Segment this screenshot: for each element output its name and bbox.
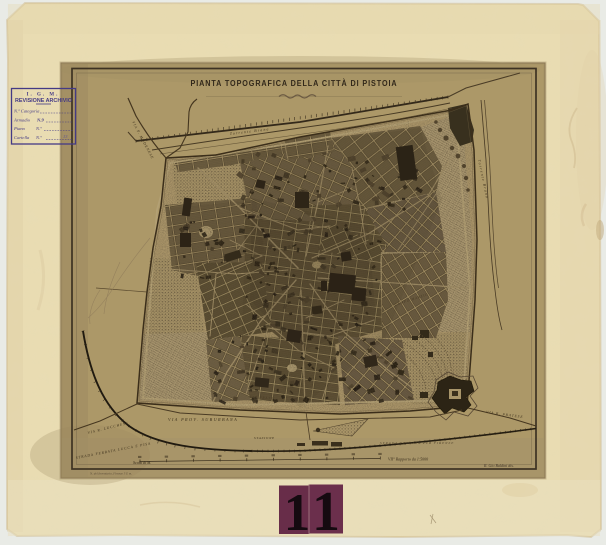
svg-text:STAZIONE: STAZIONE (254, 436, 275, 440)
svg-text:VIA PROV. SUBURBANA: VIA PROV. SUBURBANA (168, 417, 238, 422)
svg-text:N.º Categoria: N.º Categoria (13, 109, 40, 114)
svg-text:N.º: N.º (35, 126, 42, 131)
svg-text:Cartella: Cartella (14, 135, 30, 140)
svg-text:REVISIONE ARCHIVIO: REVISIONE ARCHIVIO (15, 98, 72, 104)
svg-text:1: 1 (312, 481, 340, 543)
svg-text:N.9: N.9 (36, 118, 44, 123)
svg-text:VII° Rapporto da 1:5000: VII° Rapporto da 1:5000 (388, 457, 428, 462)
svg-text:Piano: Piano (13, 126, 26, 131)
svg-text:STRADA FERRATA PER FIRENZE: STRADA FERRATA PER FIRENZE (380, 441, 454, 445)
svg-text:R. Gio Baldini dis.: R. Gio Baldini dis. (483, 463, 514, 468)
svg-text:1: 1 (284, 484, 311, 542)
svg-text:I. G. M.: I. G. M. (27, 93, 60, 98)
svg-text:Scala di M.: Scala di M. (133, 460, 151, 465)
svg-text:Armadio: Armadio (13, 118, 31, 123)
svg-text:PIANTA TOPOGRAFICA DELLA CITTÀ: PIANTA TOPOGRAFICA DELLA CITTÀ DI PISTOI… (191, 79, 398, 88)
svg-text:N.º: N.º (35, 135, 42, 140)
